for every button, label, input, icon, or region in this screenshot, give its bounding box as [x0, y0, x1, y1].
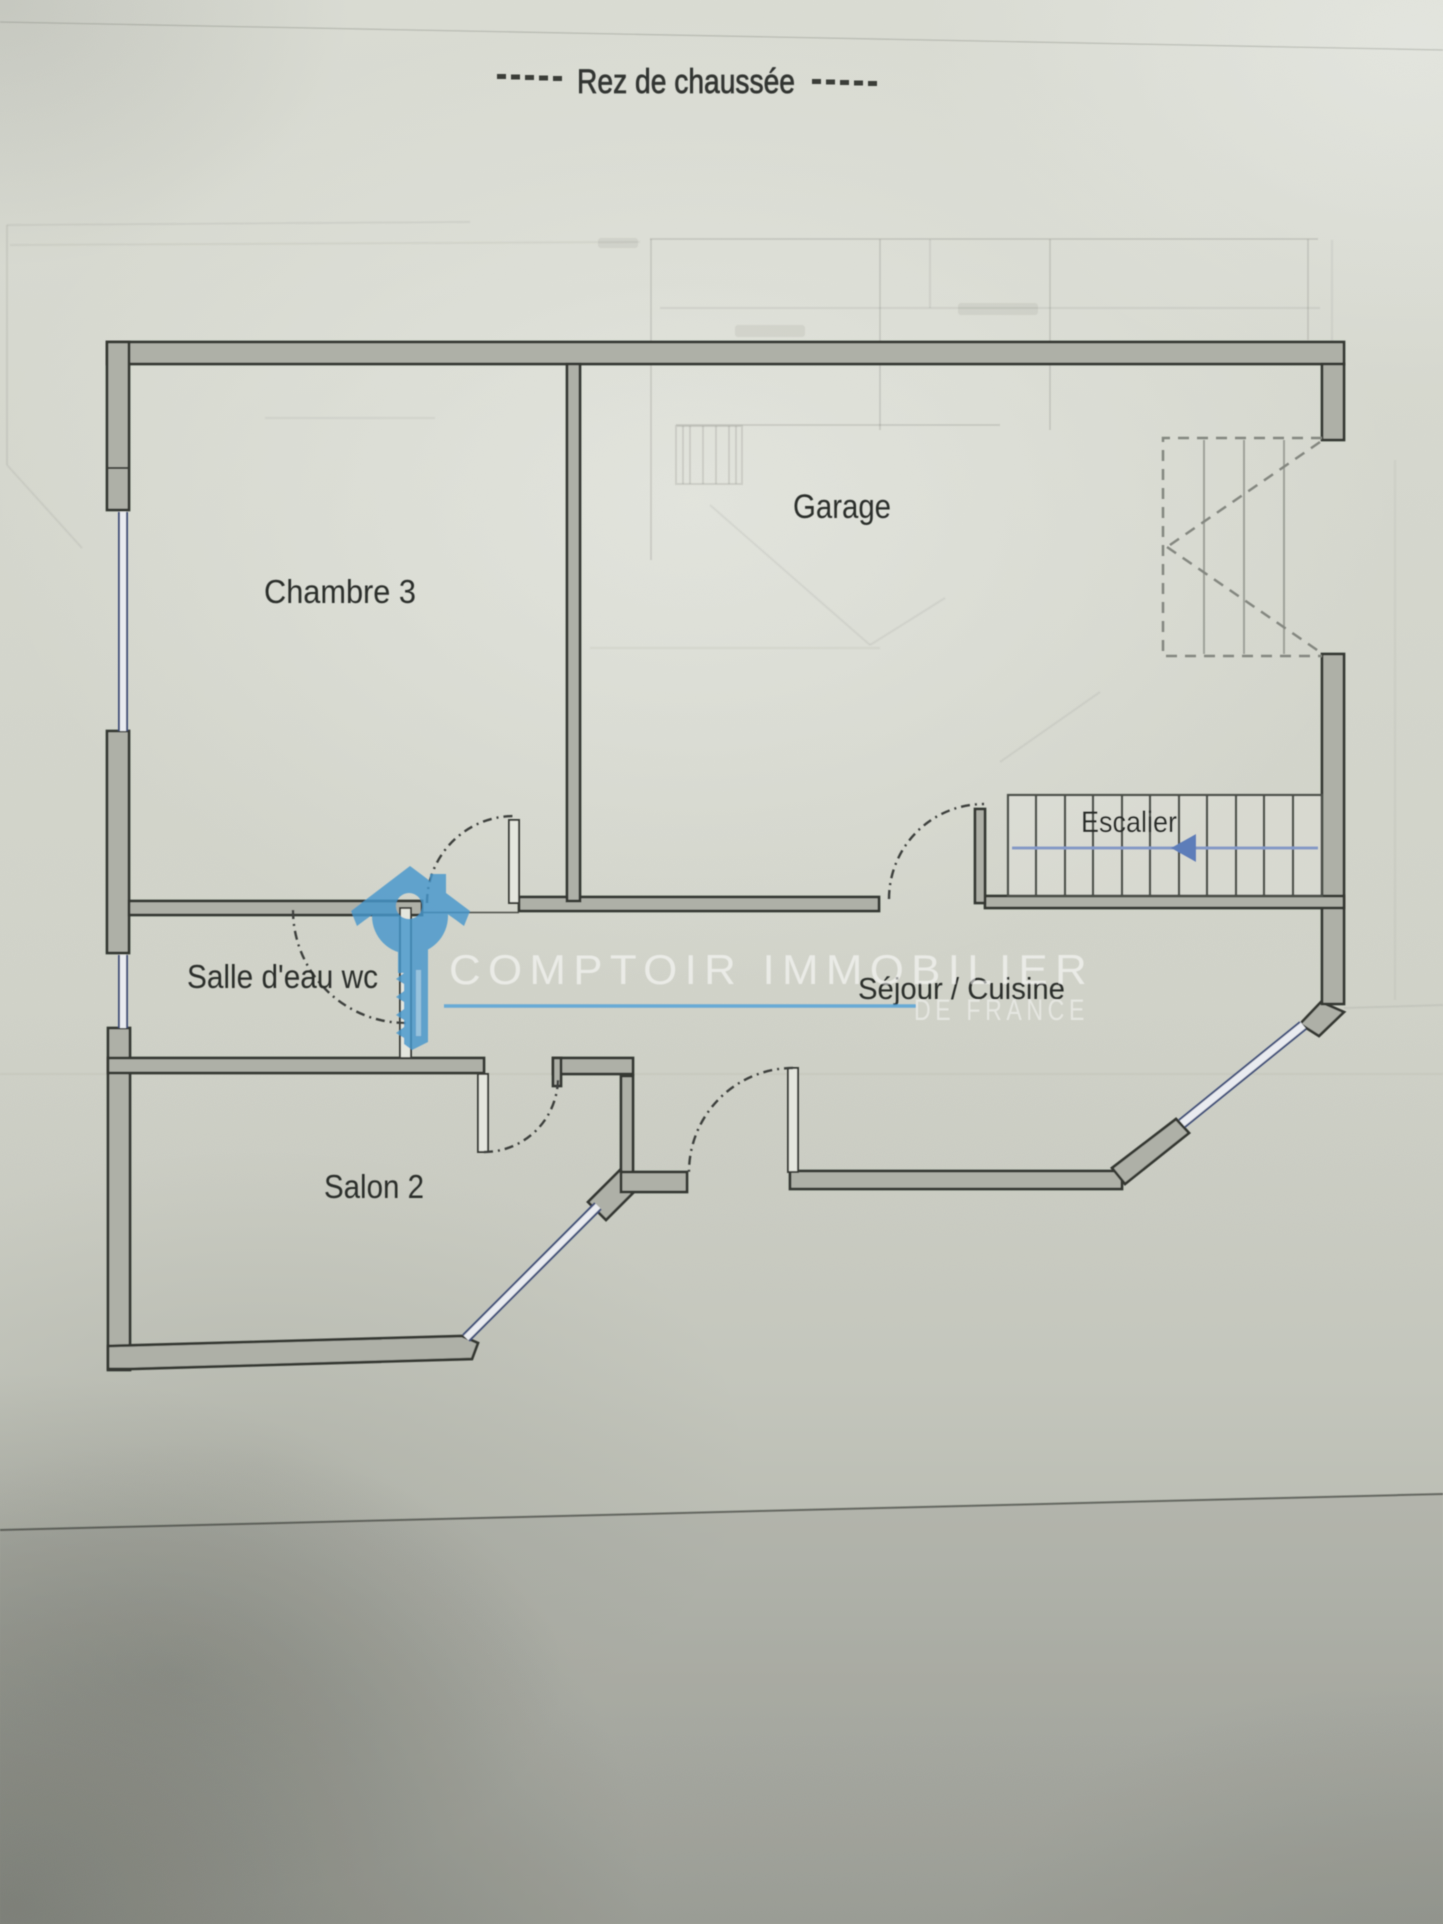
svg-text:Rez de chaussée: Rez de chaussée: [577, 63, 795, 101]
svg-text:Chambre 3: Chambre 3: [264, 573, 416, 610]
svg-text:DE FRANCE: DE FRANCE: [914, 994, 1089, 1027]
svg-text:Garage: Garage: [793, 488, 891, 526]
svg-text:Salon 2: Salon 2: [324, 1168, 424, 1205]
svg-text:Salle d'eau wc: Salle d'eau wc: [187, 958, 378, 995]
svg-text:Escalier: Escalier: [1081, 806, 1177, 839]
svg-text:COMPTOIR IMMOBILIER: COMPTOIR IMMOBILIER: [449, 946, 1094, 993]
